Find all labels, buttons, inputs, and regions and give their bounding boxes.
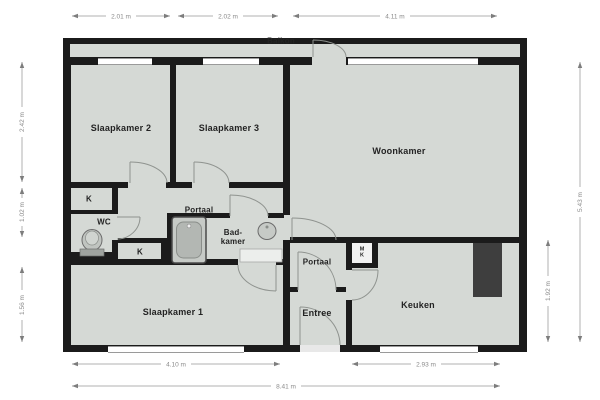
- label-keuken: Keuken: [401, 300, 435, 310]
- toilet: [80, 230, 104, 257]
- woonkamer-door-arc: [292, 218, 336, 240]
- label-woonkamer: Woonkamer: [372, 146, 425, 156]
- dim-bottom-2: 2.93 m: [416, 362, 436, 369]
- label-portaal2: Portaal: [303, 258, 332, 267]
- door-arcs: [117, 40, 378, 345]
- bath-mat: [240, 249, 282, 262]
- label-portaal1: Portaal: [185, 206, 214, 215]
- label-balkon: Balkon: [267, 37, 295, 46]
- dim-top-1: 2.01 m: [111, 14, 131, 21]
- label-badkamer: Bad- kamer: [221, 228, 246, 246]
- dim-left-3: 1.56 m: [19, 295, 26, 315]
- bathtub: [172, 217, 206, 263]
- sink: [258, 223, 276, 240]
- label-wc: WC: [97, 218, 111, 227]
- label-kast1: K: [86, 195, 92, 204]
- badkamer-door-arc: [230, 195, 268, 216]
- kitchen-counter: [473, 243, 502, 297]
- label-kast2: K: [137, 248, 143, 257]
- label-meterkast: M K: [360, 248, 365, 259]
- dim-left-2: 1.02 m: [19, 202, 26, 222]
- label-slaapkamer2: Slaapkamer 2: [91, 123, 151, 133]
- floor-plan: 2.01 m 2.02 m 4.11 m 4.10 m 2.93 m: [0, 0, 600, 400]
- dim-left-1: 2.42 m: [19, 112, 26, 132]
- dim-bottom-1: 4.10 m: [166, 362, 186, 369]
- label-slaapkamer1: Slaapkamer 1: [143, 307, 203, 317]
- label-entree: Entree: [302, 308, 331, 318]
- wc-door-arc: [117, 217, 140, 239]
- dim-bottom-total: 8.41 m: [276, 384, 296, 391]
- slaapkamer3-door-arc: [194, 162, 229, 183]
- dim-right-outer: 5.43 m: [577, 192, 584, 212]
- keuken-door-arc: [352, 270, 378, 300]
- dim-right-inner: 1.92 m: [545, 281, 552, 301]
- label-slaapkamer3: Slaapkamer 3: [199, 123, 259, 133]
- slaapkamer1-door-arc: [238, 265, 276, 291]
- dim-top-3: 4.11 m: [385, 14, 404, 21]
- balkon-door-arc: [313, 40, 346, 57]
- dimension-lines: 2.01 m 2.02 m 4.11 m 4.10 m 2.93 m: [18, 12, 584, 391]
- dim-top-2: 2.02 m: [218, 14, 238, 21]
- slaapkamer2-door-arc: [130, 162, 167, 183]
